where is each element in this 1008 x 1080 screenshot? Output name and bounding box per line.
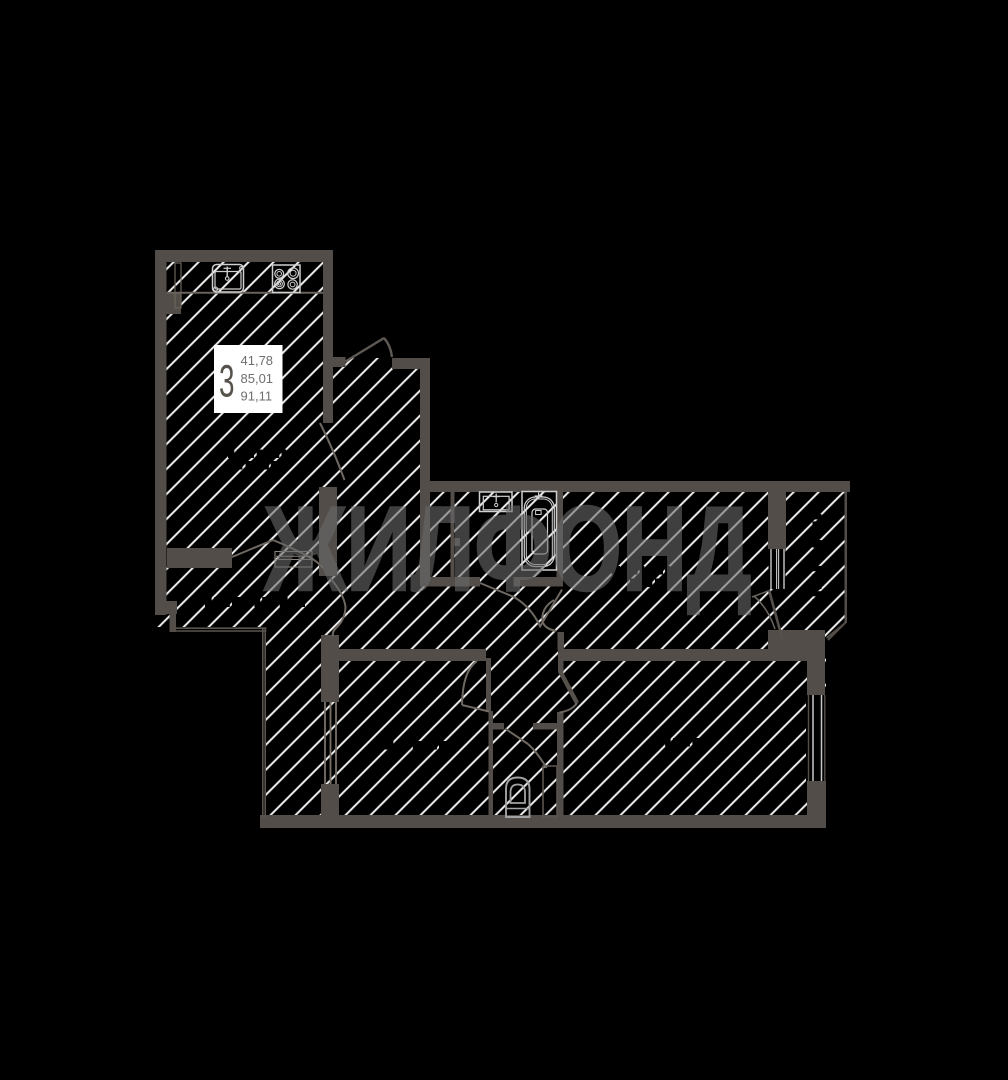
svg-text:41,78: 41,78 [241,353,274,368]
svg-text:91,11: 91,11 [241,389,273,404]
svg-text:ЖИЛФОНД: ЖИЛФОНД [264,482,752,616]
svg-text:3: 3 [219,356,235,407]
svg-text:85,01: 85,01 [241,371,274,386]
